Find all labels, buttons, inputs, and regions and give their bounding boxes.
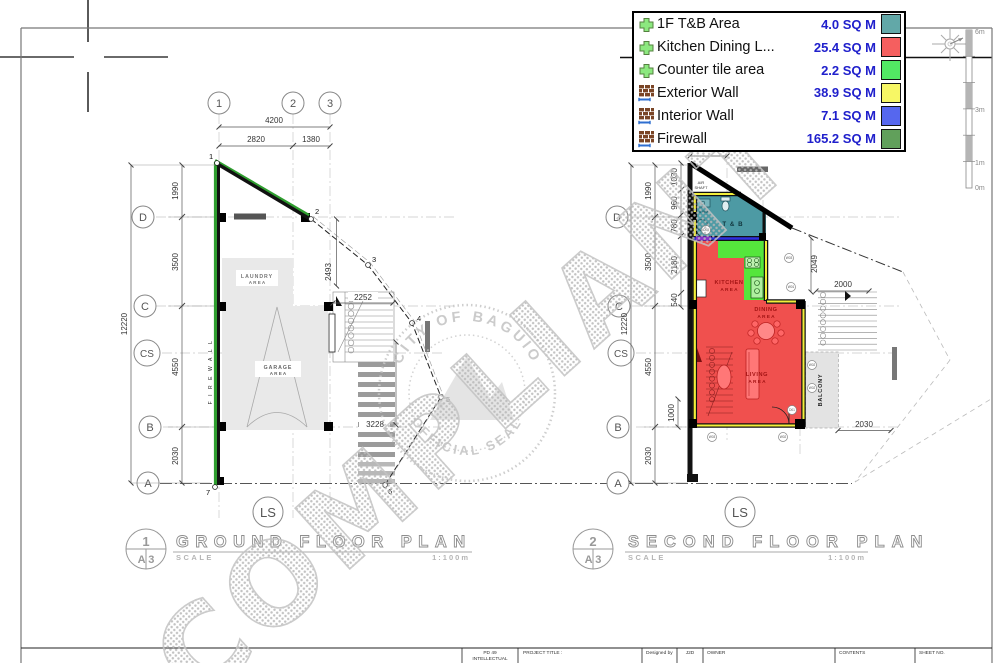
area-icon [637, 38, 656, 57]
svg-text:1m: 1m [975, 160, 985, 167]
svg-text:SCALE: SCALE [176, 553, 214, 562]
svg-text:CS: CS [614, 349, 628, 360]
svg-text:3m: 3m [975, 107, 985, 114]
svg-text:SHAFT: SHAFT [694, 185, 708, 190]
svg-text:4550: 4550 [171, 358, 180, 376]
svg-text:Designed by: Designed by [646, 650, 673, 656]
svg-text:7: 7 [206, 488, 210, 497]
legend-label: Kitchen Dining L... [657, 39, 784, 55]
svg-text:2030: 2030 [171, 447, 180, 465]
svg-text:1000: 1000 [667, 404, 676, 422]
legend-swatch [881, 129, 901, 149]
legend-row-firewall[interactable]: Firewall 165.2 SQ M [634, 127, 904, 150]
svg-text:780: 780 [670, 219, 679, 233]
svg-text:D03: D03 [703, 228, 709, 232]
legend-label: Counter tile area [657, 62, 784, 78]
svg-text:A R E A: A R E A [748, 379, 766, 385]
svg-text:PD 49: PD 49 [483, 650, 497, 656]
svg-text:W02: W02 [780, 435, 787, 439]
legend-swatch [881, 60, 901, 80]
legend-value: 38.9 SQ M [784, 85, 876, 100]
svg-text:W02: W02 [809, 386, 816, 390]
svg-text:2030: 2030 [855, 420, 873, 429]
legend-row-interior-wall[interactable]: Interior Wall 7.1 SQ M [634, 104, 904, 127]
laundry-label2: A R E A [249, 280, 266, 285]
svg-text:KITCHEN: KITCHEN [714, 280, 743, 286]
second-title: 2 A 3 SECOND FLOOR PLAN SCALE 1:100m [573, 529, 929, 569]
grid-bubbles-top: 1 2 3 [208, 92, 341, 114]
svg-text:OWNER: OWNER [707, 650, 726, 656]
svg-text:C: C [141, 301, 149, 313]
ls-bubble: LS [260, 505, 276, 520]
svg-text:INTELLECTUAL: INTELLECTUAL [472, 656, 508, 662]
svg-text:2: 2 [589, 534, 596, 549]
svg-text:B: B [146, 422, 153, 434]
svg-text:A R E A: A R E A [757, 314, 775, 320]
svg-text:5: 5 [446, 395, 450, 404]
svg-text:SCALE: SCALE [628, 553, 666, 562]
svg-text:BALCONY: BALCONY [818, 374, 824, 407]
svg-text:1380: 1380 [302, 135, 320, 144]
svg-text:1: 1 [216, 98, 222, 110]
svg-text:4: 4 [417, 314, 421, 323]
svg-text:540: 540 [670, 293, 679, 307]
svg-text:960: 960 [670, 196, 679, 210]
wall-icon [637, 129, 656, 148]
svg-text:6: 6 [388, 487, 392, 496]
second-title-text: SECOND FLOOR PLAN [628, 533, 929, 551]
svg-text:3500: 3500 [171, 253, 180, 271]
svg-text:3228: 3228 [366, 420, 384, 429]
svg-text:3500: 3500 [644, 253, 653, 271]
legend-value: 25.4 SQ M [784, 40, 876, 55]
svg-text:2252: 2252 [354, 293, 372, 302]
legend-label: Interior Wall [657, 108, 784, 124]
svg-text:W03: W03 [786, 256, 793, 260]
legend-value: 2.2 SQ M [784, 63, 876, 78]
svg-text:CONTENTS: CONTENTS [839, 650, 865, 656]
svg-text:1:100m: 1:100m [432, 553, 470, 562]
legend-swatch [881, 37, 901, 57]
svg-text:A: A [144, 478, 152, 490]
ground-title: 1 A 3 GROUND FLOOR PLAN SCALE 1:100m [126, 529, 472, 569]
svg-text:0m: 0m [975, 185, 985, 192]
legend-label: Exterior Wall [657, 85, 784, 101]
svg-text:B: B [614, 422, 621, 434]
drawing-sheet: LAUNDRY A R E A GARAGE A R E A [0, 0, 1000, 663]
svg-text:3: 3 [372, 255, 376, 264]
svg-text:2: 2 [315, 207, 319, 216]
legend-swatch [881, 83, 901, 103]
legend-swatch [881, 14, 901, 34]
svg-text:A: A [614, 478, 622, 490]
svg-text:2049: 2049 [810, 255, 819, 273]
svg-text:A 3: A 3 [138, 554, 155, 566]
legend-row-counter[interactable]: Counter tile area 2.2 SQ M [634, 59, 904, 82]
garage-label2: A R E A [270, 371, 287, 376]
svg-text:2493: 2493 [324, 263, 333, 281]
svg-text:1990: 1990 [171, 182, 180, 200]
svg-text:A R E A: A R E A [720, 287, 738, 293]
svg-text:W01: W01 [788, 285, 795, 289]
svg-text:A 3: A 3 [585, 554, 602, 566]
svg-text:SHEET NO.: SHEET NO. [919, 650, 945, 656]
svg-text:4200: 4200 [265, 116, 283, 125]
ground-floor-plan: LAUNDRY A R E A GARAGE A R E A [120, 92, 652, 569]
area-legend: 1F T&B Area 4.0 SQ M Kitchen Dining L...… [632, 11, 906, 152]
svg-text:4550: 4550 [644, 358, 653, 376]
svg-text:D01: D01 [789, 408, 795, 412]
svg-text:2000: 2000 [834, 280, 852, 289]
svg-text:1: 1 [209, 152, 213, 161]
ground-stairs [329, 292, 395, 484]
svg-text:6m: 6m [975, 29, 985, 36]
svg-text:12220: 12220 [620, 312, 629, 335]
scale-bar: 6m 3m 1m 0m [963, 29, 985, 192]
svg-text:C: C [615, 301, 623, 313]
svg-text:W03: W03 [709, 435, 716, 439]
svg-text:1030: 1030 [670, 168, 679, 186]
svg-text:2030: 2030 [644, 447, 653, 465]
svg-text:D: D [139, 212, 147, 224]
svg-text:3: 3 [327, 98, 333, 110]
legend-row-exterior-wall[interactable]: Exterior Wall 38.9 SQ M [634, 81, 904, 104]
svg-text:SINK: SINK [699, 210, 709, 214]
svg-text:12220: 12220 [120, 312, 129, 335]
svg-text:1: 1 [142, 534, 149, 549]
legend-value: 4.0 SQ M [784, 17, 876, 32]
area-icon [637, 15, 656, 34]
svg-text:J2D: J2D [686, 650, 695, 656]
legend-row-tb[interactable]: 1F T&B Area 4.0 SQ M [634, 13, 904, 36]
svg-text:LS: LS [732, 505, 748, 520]
svg-text:LIVING: LIVING [746, 372, 768, 378]
area-icon [637, 61, 656, 80]
legend-label: Firewall [657, 131, 784, 147]
svg-text:DINING: DINING [754, 307, 777, 313]
title-block: PD 49 INTELLECTUAL PROJECT TITLE : Desig… [21, 648, 992, 663]
svg-text:1:100m: 1:100m [828, 553, 866, 562]
svg-text:1990: 1990 [644, 182, 653, 200]
svg-text:2: 2 [290, 98, 296, 110]
ground-title-text: GROUND FLOOR PLAN [176, 533, 472, 551]
legend-swatch [881, 106, 901, 126]
legend-value: 165.2 SQ M [784, 131, 876, 146]
svg-text:T & B: T & B [722, 221, 743, 228]
legend-label: 1F T&B Area [657, 16, 784, 32]
svg-text:CS: CS [140, 349, 154, 360]
svg-text:PROJECT TITLE :: PROJECT TITLE : [523, 650, 562, 656]
north-compass-icon: N [932, 27, 970, 61]
svg-text:2180: 2180 [670, 256, 679, 274]
svg-text:2820: 2820 [247, 135, 265, 144]
legend-value: 7.1 SQ M [784, 108, 876, 123]
exterior-stairs [818, 292, 877, 350]
firewall-text: FIREWALL [208, 336, 214, 405]
svg-text:D: D [613, 212, 621, 224]
wall-icon [637, 83, 656, 102]
svg-text:W02: W02 [809, 363, 816, 367]
second-floor-plan: AIR SHAFT SINK T & B KITCHEN A R E A DIN… [573, 145, 991, 569]
wall-icon [637, 106, 656, 125]
legend-row-kitchen-dining[interactable]: Kitchen Dining L... 25.4 SQ M [634, 36, 904, 59]
